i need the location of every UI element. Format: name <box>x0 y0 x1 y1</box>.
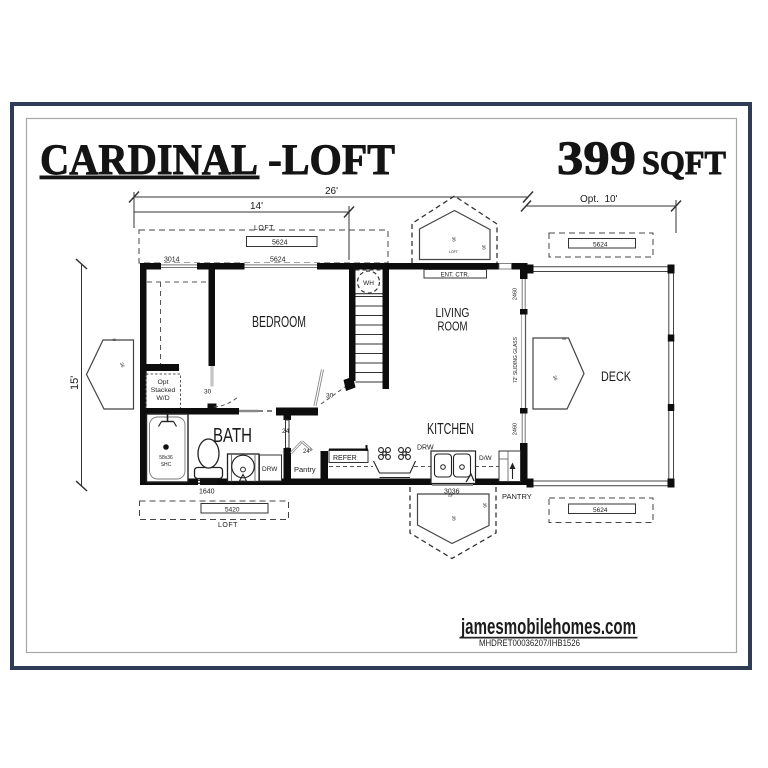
svg-text:BATH: BATH <box>213 425 252 447</box>
svg-text:jamesmobilehomes.com: jamesmobilehomes.com <box>460 614 636 639</box>
svg-text:30: 30 <box>326 393 334 400</box>
svg-text:46: 46 <box>562 337 566 341</box>
svg-text:Opt: Opt <box>158 379 169 386</box>
svg-text:5624: 5624 <box>270 257 286 264</box>
svg-text:Opt. 10': Opt. 10' <box>580 194 618 205</box>
svg-text:DECK: DECK <box>601 369 631 384</box>
svg-text:LOFT: LOFT <box>449 250 459 254</box>
svg-text:26': 26' <box>325 186 338 197</box>
svg-text:W/D: W/D <box>156 395 169 402</box>
svg-text:LOFT: LOFT <box>218 522 238 529</box>
svg-text:REFER: REFER <box>333 455 357 462</box>
svg-text:14': 14' <box>250 201 263 212</box>
svg-text:5420: 5420 <box>225 507 240 514</box>
svg-text:BEDROOM: BEDROOM <box>252 314 306 331</box>
svg-text:WH: WH <box>363 280 374 287</box>
svg-text:72' SLIDING GLASS: 72' SLIDING GLASS <box>513 336 519 383</box>
svg-text:SQFT: SQFT <box>642 145 726 182</box>
svg-text:SHC: SHC <box>161 462 172 468</box>
svg-text:5624: 5624 <box>593 507 608 514</box>
svg-text:-LOFT: -LOFT <box>268 137 395 184</box>
svg-text:LOFT: LOFT <box>254 225 274 232</box>
svg-text:Stacked: Stacked <box>151 387 176 394</box>
svg-text:24: 24 <box>282 428 290 435</box>
svg-text:ENT. CTR.: ENT. CTR. <box>441 273 470 279</box>
svg-text:399: 399 <box>557 132 636 185</box>
svg-text:D/W: D/W <box>479 455 493 462</box>
svg-text:15': 15' <box>69 376 81 390</box>
svg-text:46: 46 <box>112 338 116 342</box>
svg-text:24°: 24° <box>303 449 313 455</box>
svg-text:5624: 5624 <box>272 240 288 247</box>
svg-text:Pantry: Pantry <box>294 465 316 474</box>
svg-text:LIVING: LIVING <box>436 306 470 320</box>
svg-text:ROOM: ROOM <box>438 320 468 334</box>
svg-text:58x36: 58x36 <box>159 455 173 461</box>
svg-text:DRW: DRW <box>262 466 278 473</box>
svg-text:GF: GF <box>448 494 453 498</box>
svg-text:30: 30 <box>204 389 212 396</box>
svg-text:1640: 1640 <box>199 489 215 496</box>
svg-text:KITCHEN: KITCHEN <box>427 421 474 438</box>
svg-text:3014: 3014 <box>164 257 180 264</box>
svg-text:2460: 2460 <box>513 423 519 435</box>
svg-text:PANTRY: PANTRY <box>502 492 532 501</box>
svg-text:2460: 2460 <box>513 288 519 300</box>
svg-text:MHDRET00036207/IHB1526: MHDRET00036207/IHB1526 <box>479 638 580 648</box>
svg-text:5624: 5624 <box>593 242 608 249</box>
